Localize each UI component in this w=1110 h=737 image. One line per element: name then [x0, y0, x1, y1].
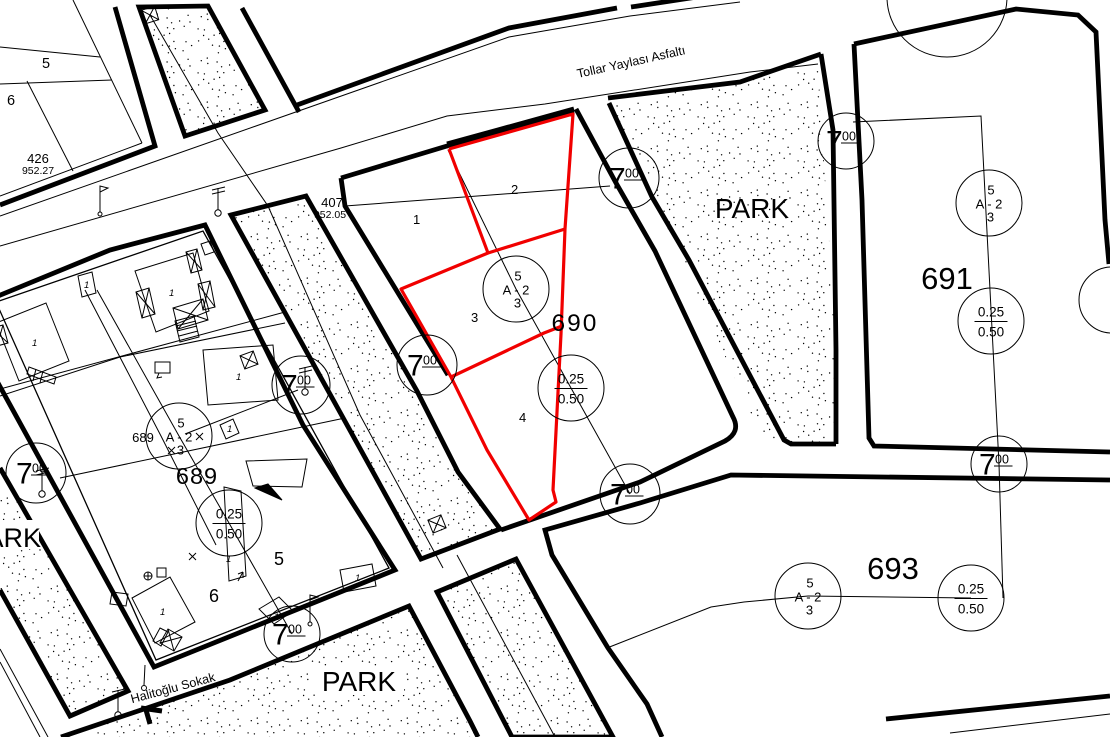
- svg-text:407: 407: [321, 195, 343, 210]
- svg-text:691: 691: [921, 261, 973, 296]
- svg-text:PARK: PARK: [715, 193, 789, 224]
- svg-text:1: 1: [236, 372, 241, 383]
- svg-text:PARK: PARK: [322, 666, 396, 697]
- svg-text:693: 693: [867, 551, 919, 586]
- svg-text:952.05: 952.05: [314, 209, 346, 221]
- svg-text:1: 1: [226, 554, 231, 565]
- svg-text:1: 1: [355, 573, 360, 584]
- svg-text:5: 5: [42, 56, 50, 72]
- svg-text:1: 1: [32, 338, 37, 349]
- svg-text:952.27: 952.27: [22, 165, 54, 177]
- svg-text:2: 2: [511, 182, 518, 197]
- svg-text:1: 1: [413, 212, 420, 227]
- svg-text:6: 6: [7, 93, 15, 109]
- svg-text:1: 1: [169, 288, 174, 299]
- svg-text:6: 6: [209, 586, 219, 606]
- svg-text:690: 690: [552, 310, 599, 337]
- svg-text:689: 689: [132, 430, 154, 445]
- svg-text:PARK: PARK: [0, 523, 41, 553]
- svg-text:3: 3: [471, 310, 478, 325]
- svg-text:1: 1: [160, 607, 165, 618]
- svg-text:4: 4: [519, 410, 526, 425]
- svg-text:1: 1: [84, 280, 89, 291]
- svg-text:689: 689: [176, 463, 218, 489]
- svg-text:1: 1: [227, 424, 232, 435]
- svg-text:5: 5: [274, 549, 284, 569]
- svg-text:426: 426: [27, 151, 49, 166]
